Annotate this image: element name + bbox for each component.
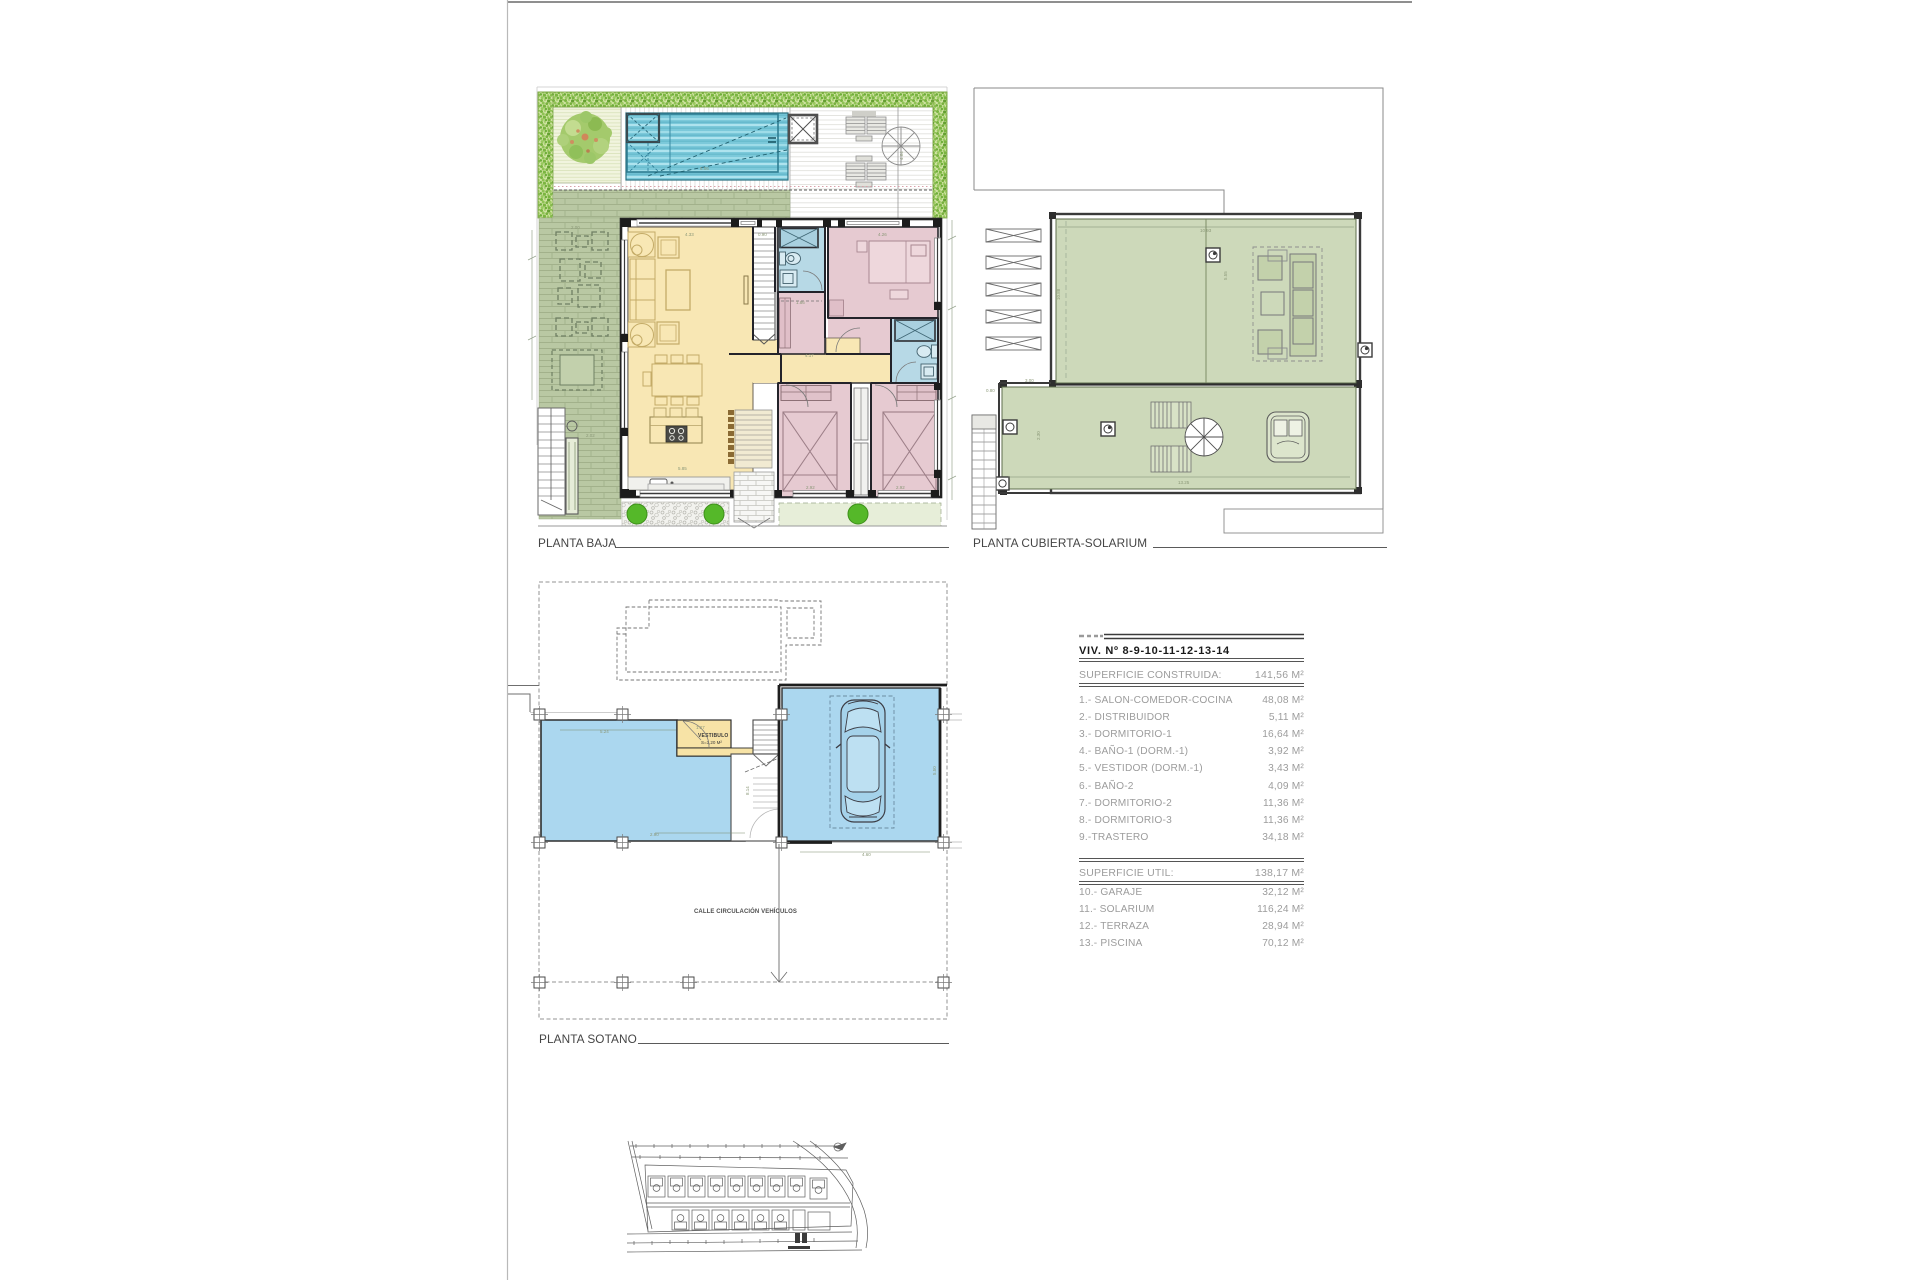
svg-text:10.- GARAJE: 10.- GARAJE: [1079, 887, 1142, 898]
svg-text:6.- BAÑO-2: 6.- BAÑO-2: [1079, 779, 1134, 792]
svg-text:2.92: 2.92: [896, 485, 905, 490]
svg-text:32,12 M²: 32,12 M²: [1262, 887, 1304, 898]
svg-text:1.86: 1.86: [796, 300, 805, 305]
svg-text:4.26: 4.26: [878, 232, 887, 237]
svg-text:5,11 M²: 5,11 M²: [1269, 712, 1305, 723]
svg-text:3.- DORMITORIO-1: 3.- DORMITORIO-1: [1079, 729, 1172, 740]
svg-text:8.14: 8.14: [745, 786, 750, 795]
svg-text:12.- TERRAZA: 12.- TERRAZA: [1079, 921, 1149, 932]
svg-text:4.33: 4.33: [685, 232, 694, 237]
svg-text:16,64 M²: 16,64 M²: [1262, 729, 1304, 740]
svg-text:1.- SALON-COMEDOR-COCINA: 1.- SALON-COMEDOR-COCINA: [1079, 695, 1233, 706]
svg-text:6.06: 6.06: [700, 166, 709, 171]
svg-text:3,43 M²: 3,43 M²: [1268, 763, 1304, 774]
svg-text:48,08 M²: 48,08 M²: [1262, 695, 1304, 706]
svg-text:70,12 M²: 70,12 M²: [1262, 938, 1304, 949]
svg-text:2.- DISTRIBUIDOR: 2.- DISTRIBUIDOR: [1079, 712, 1170, 723]
svg-text:4.- BAÑO-1 (DORM.-1): 4.- BAÑO-1 (DORM.-1): [1079, 744, 1188, 757]
svg-text:141,56 M²: 141,56 M²: [1255, 669, 1304, 681]
svg-text:8.- DORMITORIO-3: 8.- DORMITORIO-3: [1079, 815, 1172, 826]
svg-text:13.25: 13.25: [1178, 480, 1190, 485]
svg-text:10.88: 10.88: [1056, 288, 1061, 300]
svg-text:11.- SOLARIUM: 11.- SOLARIUM: [1079, 904, 1154, 915]
svg-text:2.02: 2.02: [586, 433, 595, 438]
svg-text:5.85: 5.85: [678, 466, 687, 471]
svg-text:PLANTA CUBIERTA-SOLARIUM: PLANTA CUBIERTA-SOLARIUM: [973, 536, 1147, 550]
svg-text:SUPERFICIE UTIL:: SUPERFICIE UTIL:: [1079, 867, 1174, 879]
svg-text:13.- PISCINA: 13.- PISCINA: [1079, 938, 1143, 949]
svg-text:138,17 M²: 138,17 M²: [1255, 867, 1304, 879]
svg-text:VESTIBULO: VESTIBULO: [698, 733, 728, 739]
svg-text:5.- VESTIDOR (DORM.-1): 5.- VESTIDOR (DORM.-1): [1079, 763, 1203, 774]
svg-text:VIV. Nº 8-9-10-11-12-13-14: VIV. Nº 8-9-10-11-12-13-14: [1079, 645, 1230, 657]
svg-text:SUPERFICIE CONSTRUIDA:: SUPERFICIE CONSTRUIDA:: [1079, 669, 1222, 681]
svg-text:1.27: 1.27: [696, 725, 705, 730]
svg-text:28,94 M²: 28,94 M²: [1262, 921, 1304, 932]
svg-text:PLANTA BAJA: PLANTA BAJA: [538, 536, 616, 550]
svg-text:0.90: 0.90: [758, 232, 767, 237]
svg-text:9.-TRASTERO: 9.-TRASTERO: [1079, 832, 1149, 843]
svg-text:2.00: 2.00: [571, 225, 580, 230]
svg-text:11,36 M²: 11,36 M²: [1263, 815, 1304, 826]
svg-text:2.30: 2.30: [1036, 431, 1041, 440]
svg-text:5.55: 5.55: [1223, 271, 1228, 280]
svg-text:PLANTA SOTANO: PLANTA SOTANO: [539, 1032, 637, 1046]
svg-text:11,36 M²: 11,36 M²: [1263, 798, 1304, 809]
svg-text:4,09 M²: 4,09 M²: [1268, 781, 1304, 792]
svg-text:0.80: 0.80: [986, 388, 995, 393]
svg-text:34,18 M²: 34,18 M²: [1262, 832, 1304, 843]
svg-text:S=3,20 M²: S=3,20 M²: [701, 740, 722, 745]
svg-text:4.60: 4.60: [862, 852, 871, 857]
svg-text:116,24 M²: 116,24 M²: [1257, 904, 1304, 915]
svg-text:2.92: 2.92: [806, 485, 815, 490]
svg-text:10.93: 10.93: [1200, 228, 1212, 233]
svg-text:4.17: 4.17: [805, 353, 814, 358]
svg-text:4.64: 4.64: [899, 151, 904, 160]
svg-text:3,92 M²: 3,92 M²: [1268, 746, 1304, 757]
svg-text:CALLE CIRCULACIÓN VEHÍCULOS: CALLE CIRCULACIÓN VEHÍCULOS: [694, 907, 797, 915]
svg-text:5.50: 5.50: [932, 766, 937, 775]
svg-text:3.00: 3.00: [1025, 378, 1034, 383]
svg-text:7.- DORMITORIO-2: 7.- DORMITORIO-2: [1079, 798, 1172, 809]
